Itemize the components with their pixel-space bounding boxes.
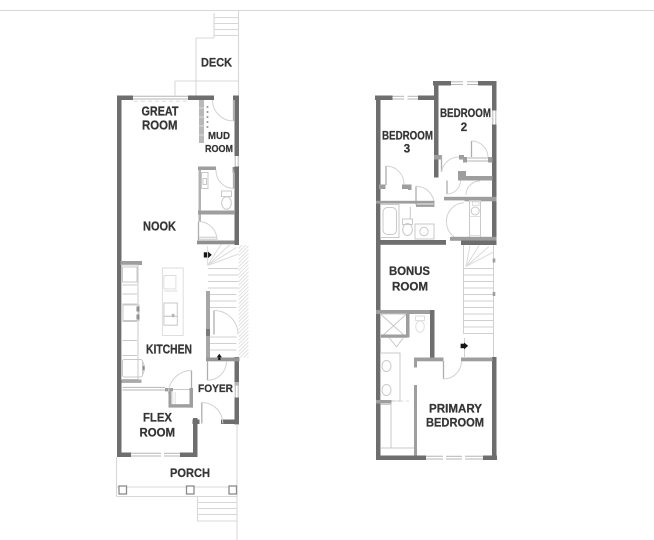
svg-text:ROOM: ROOM xyxy=(392,280,428,294)
svg-text:ROOM: ROOM xyxy=(140,426,176,440)
svg-text:PRIMARY: PRIMARY xyxy=(429,402,482,416)
svg-text:BONUS: BONUS xyxy=(389,264,430,278)
svg-text:3: 3 xyxy=(404,144,410,156)
svg-text:MUD: MUD xyxy=(208,130,230,142)
svg-text:BEDROOM: BEDROOM xyxy=(440,108,491,120)
svg-text:GREAT: GREAT xyxy=(142,104,179,119)
svg-text:NOOK: NOOK xyxy=(143,219,177,234)
svg-text:KITCHEN: KITCHEN xyxy=(146,342,192,357)
svg-text:ROOM: ROOM xyxy=(142,118,178,133)
svg-text:BEDROOM: BEDROOM xyxy=(382,131,433,143)
svg-text:2: 2 xyxy=(461,122,467,134)
svg-text:FOYER: FOYER xyxy=(198,383,233,395)
svg-text:PORCH: PORCH xyxy=(170,466,210,480)
svg-text:BEDROOM: BEDROOM xyxy=(426,416,484,430)
svg-text:DECK: DECK xyxy=(201,56,232,70)
svg-text:FLEX: FLEX xyxy=(143,411,172,425)
svg-text:ROOM: ROOM xyxy=(205,143,233,155)
